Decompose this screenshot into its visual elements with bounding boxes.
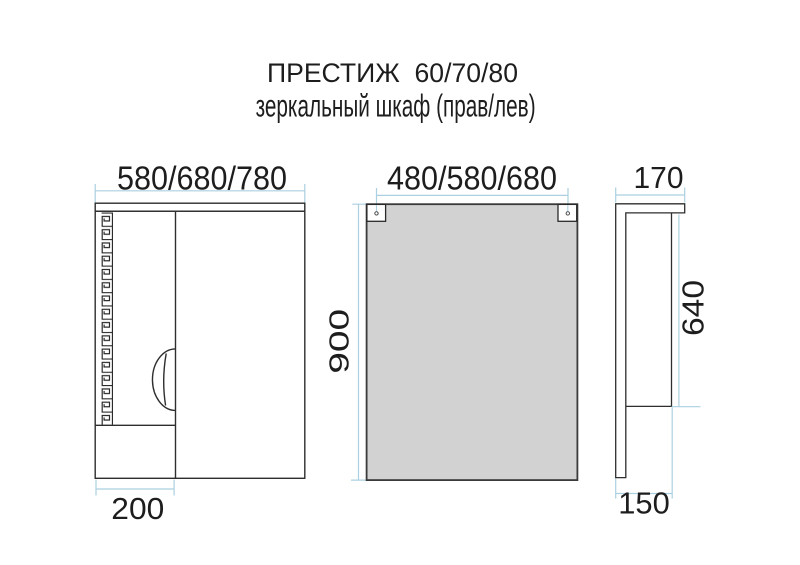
svg-text:640: 640 bbox=[677, 280, 711, 336]
svg-text:150: 150 bbox=[618, 487, 670, 521]
svg-text:480/580/680: 480/580/680 bbox=[387, 160, 557, 197]
svg-text:170: 170 bbox=[634, 161, 684, 195]
svg-text:ПРЕСТИЖ 60/70/80: ПРЕСТИЖ 60/70/80 bbox=[267, 58, 518, 88]
svg-text:зеркальный шкаф (прав/лев): зеркальный шкаф (прав/лев) bbox=[256, 87, 536, 123]
svg-text:900: 900 bbox=[324, 309, 355, 374]
svg-text:200: 200 bbox=[111, 491, 164, 526]
svg-text:580/680/780: 580/680/780 bbox=[117, 160, 287, 197]
